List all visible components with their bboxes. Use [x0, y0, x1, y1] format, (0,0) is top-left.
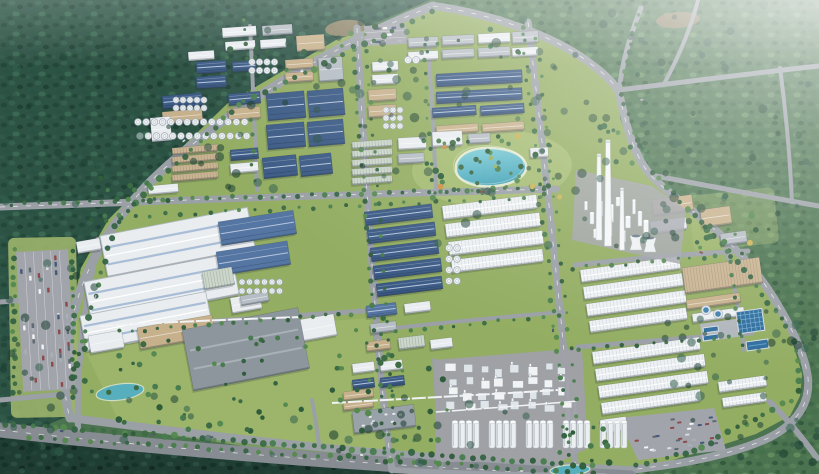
scene-canvas — [0, 0, 819, 474]
top-mist-overlay — [0, 0, 819, 474]
industrial-park-aerial-rendering — [0, 0, 819, 474]
